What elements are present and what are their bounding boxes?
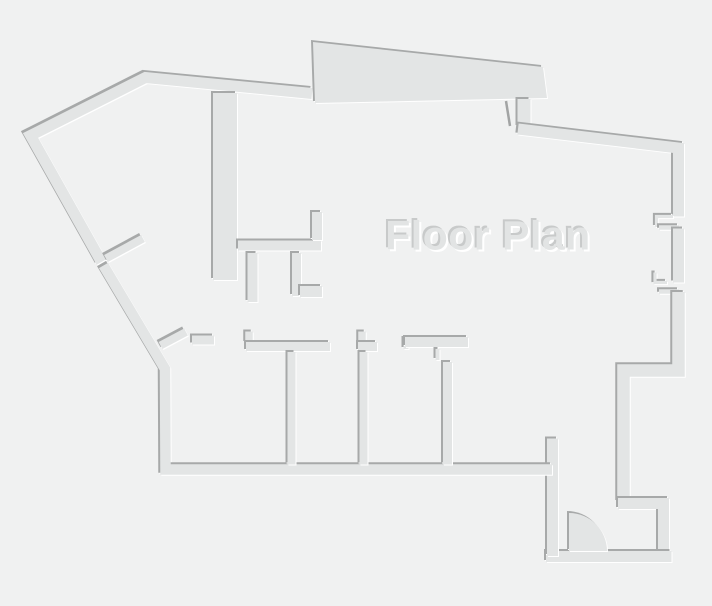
wall-right-lower (624, 292, 679, 502)
wall-angled-stub-upper (106, 239, 143, 259)
window-symbols (655, 217, 679, 292)
door-leaf-line (506, 101, 510, 126)
door-swing-arc (569, 513, 607, 551)
wall-top-right (518, 129, 679, 217)
floor-plan-canvas: Floor Plan (0, 0, 712, 606)
wall-outline-upper-left (31, 78, 313, 263)
wall-top-bump (313, 42, 547, 103)
window-2-jamb (655, 273, 667, 283)
wall-outline-left-lower (104, 266, 553, 470)
floor-plan-title: Floor Plan (385, 213, 590, 259)
wall-angled-stub-lower (161, 332, 187, 346)
floor-plan-svg: Floor Plan (0, 0, 712, 606)
wall-closet (618, 504, 664, 554)
exterior-walls (31, 42, 680, 557)
